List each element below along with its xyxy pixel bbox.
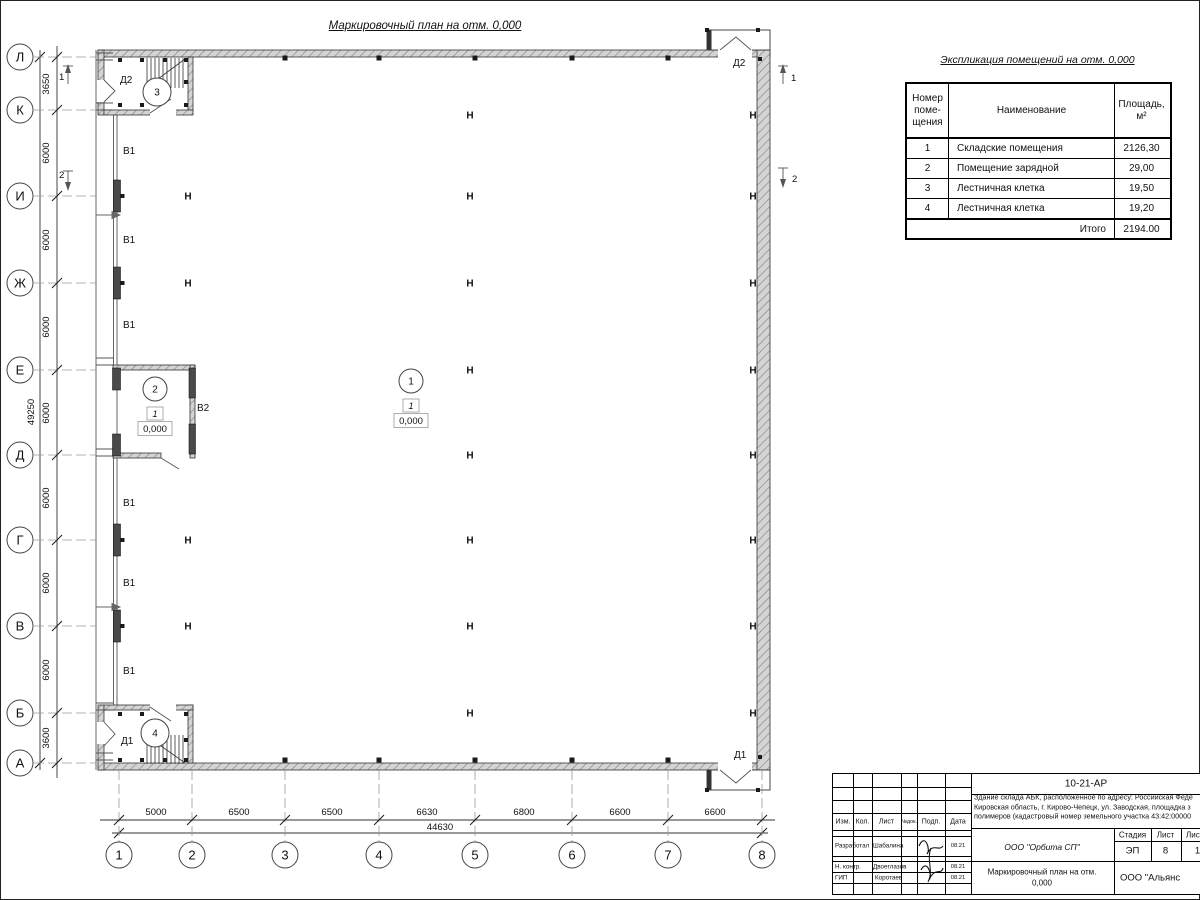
title-block: 10-21-АР Здание склада АБК, расположенно… (832, 773, 1200, 895)
door-swing-icon (104, 80, 115, 102)
column-mark: Н (466, 451, 473, 462)
column-mark: Н (749, 279, 756, 290)
title-block-line (1151, 828, 1152, 861)
door-leaf (161, 458, 179, 469)
south-wall (98, 763, 770, 770)
gate-label: В1 (123, 666, 136, 677)
title-block-line (1181, 828, 1182, 861)
room-number-cell: 2 (907, 159, 949, 178)
sheets-label: Листов (1186, 830, 1200, 839)
column-mark: Н (184, 536, 191, 547)
column-mark: Н (466, 111, 473, 122)
dimension-label: 6600 (704, 807, 725, 818)
axis-label: И (15, 189, 24, 204)
axis-label: Д (16, 448, 25, 463)
gate-label: В1 (123, 578, 136, 589)
room-schedule-title: Экспликация помещений на отм. 0,000 (905, 54, 1170, 66)
room-name-cell: Помещение зарядной (949, 159, 1115, 178)
door-label: Д1 (734, 750, 747, 761)
stage-label: Стадия (1119, 830, 1146, 839)
title-block-line (971, 828, 1200, 829)
drawing-name-line1: Маркировочный план на отм. (988, 867, 1097, 876)
dimension-label: 6000 (41, 316, 52, 337)
column-mark: Н (466, 709, 473, 720)
axis-label: 8 (758, 848, 765, 863)
drawing-name-line2: 0,000 (1032, 878, 1052, 887)
dimension-label: 6000 (41, 142, 52, 163)
column-mark: Н (749, 192, 756, 203)
room-number: 4 (152, 729, 158, 740)
axis-label: Г (16, 533, 23, 548)
column-mark: Н (749, 451, 756, 462)
column-mark: Н (184, 622, 191, 633)
axis-label: К (16, 103, 24, 118)
column-mark: Н (466, 279, 473, 290)
sheet-label: Лист (1157, 830, 1174, 839)
room-name-cell: Лестничная клетка (949, 179, 1115, 198)
dimension-total: 49250 (26, 399, 37, 425)
axis-label: 6 (568, 848, 575, 863)
door-label: Д2 (120, 75, 133, 86)
axis-label: 1 (115, 848, 122, 863)
col-izm: Изм. (836, 818, 851, 825)
room-number: 2 (152, 385, 158, 396)
room-area-cell: 29,00 (1115, 159, 1168, 178)
name-gip: Коротаев (875, 874, 902, 881)
room-schedule-body: 1Складские помещения2126,302Помещение за… (907, 139, 1170, 219)
dimension-label: 3600 (41, 727, 52, 748)
title-block-line (853, 774, 854, 894)
axis-label: 5 (471, 848, 478, 863)
east-wall (757, 50, 770, 770)
axis-label: А (16, 756, 25, 771)
name-ncontrol: Двоеглазов (873, 863, 906, 870)
dimension-label: 6630 (416, 807, 437, 818)
name-developer: Шабалина (873, 843, 903, 850)
date-developer: 08.21 (951, 843, 966, 849)
axis-label: Ж (14, 276, 26, 291)
signature-icon (917, 830, 945, 884)
column-mark: Н (749, 709, 756, 720)
title-block-line (1114, 828, 1115, 894)
project-desc-line: Кировская область, г. Кирово-Чепецк, ул.… (974, 802, 1191, 811)
section-mark-label: 1 (791, 73, 796, 84)
level-value: 0,000 (143, 424, 167, 435)
project-desc-line: Здание склада АБК, расположенное по адре… (974, 793, 1193, 802)
col-ndok: №док. (901, 819, 917, 825)
column-mark: Н (749, 536, 756, 547)
column-mark: Н (749, 622, 756, 633)
column-mark: Н (749, 111, 756, 122)
dimension-label: 6500 (321, 807, 342, 818)
section-mark-label: 2 (792, 174, 797, 185)
dimension-label: 5000 (145, 807, 166, 818)
total-label: Итого (907, 220, 1115, 238)
door-label: Д2 (733, 58, 746, 69)
col-data: Дата (950, 818, 966, 825)
door-swing-icon (104, 722, 115, 746)
column-mark: Н (466, 366, 473, 377)
room-number-cell: 1 (907, 139, 949, 158)
column-mark: Н (184, 279, 191, 290)
axis-label: 4 (375, 848, 382, 863)
level-value: 0,000 (399, 416, 423, 427)
column-mark: Н (466, 192, 473, 203)
room-schedule-table: Номер поме- щения Наименование Площадь, … (905, 82, 1172, 240)
col-header-name: Наименование (949, 84, 1115, 137)
dimension-label: 3650 (41, 73, 52, 94)
west-pilasters (96, 53, 113, 760)
title-block-line (1114, 841, 1200, 842)
wall-posts (283, 56, 671, 763)
dimension-label: 6000 (41, 572, 52, 593)
west-gates (114, 180, 125, 642)
room-area-cell: 19,20 (1115, 199, 1168, 218)
dimension-label: 6600 (609, 807, 630, 818)
column-mark: Н (466, 536, 473, 547)
col-kol: Кол. (856, 818, 870, 825)
date-gip: 08.21 (951, 875, 966, 881)
table-row: 3Лестничная клетка19,50 (907, 179, 1170, 199)
dimension-label: 6000 (41, 487, 52, 508)
zone-number: 1 (408, 401, 413, 411)
gate-label: В2 (197, 403, 210, 414)
axis-label: 7 (664, 848, 671, 863)
date-ncontrol: 08.21 (951, 864, 966, 870)
room-number: 1 (408, 377, 414, 388)
dimension-total: 44630 (427, 822, 453, 833)
col-header-area: Площадь, м² (1115, 84, 1168, 137)
project-desc-line: полимеров (кадастровый номер земельного … (974, 812, 1191, 821)
axis-label: Е (16, 363, 25, 378)
section-mark-arrow-icon (65, 64, 71, 73)
total-value: 2194.00 (1115, 220, 1168, 238)
room-number-cell: 4 (907, 199, 949, 218)
axis-label: Б (16, 706, 25, 721)
door-label: Д1 (121, 736, 134, 747)
dimension-label: 6800 (513, 807, 534, 818)
room-number-cell: 3 (907, 179, 949, 198)
room-schedule-total-row: Итого 2194.00 (907, 219, 1170, 238)
table-row: 4Лестничная клетка19,20 (907, 199, 1170, 219)
stage-value: ЭП (1126, 846, 1140, 857)
column-mark: Н (466, 622, 473, 633)
title-block-line (872, 774, 873, 894)
dimension-label: 6000 (41, 229, 52, 250)
dimension-label: 6000 (41, 659, 52, 680)
org-name: ООО "Орбита СП" (1004, 842, 1079, 852)
title-block-line (945, 774, 946, 894)
col-header-number: Номер поме- щения (907, 84, 949, 137)
gate-label: В1 (123, 498, 136, 509)
dimension-label: 6500 (228, 807, 249, 818)
company-name: ООО "Альянс (1120, 872, 1180, 883)
axis-label: Л (16, 50, 25, 65)
table-row: 2Помещение зарядной29,00 (907, 159, 1170, 179)
title-block-line (971, 774, 972, 894)
section-mark-arrow-icon (780, 179, 786, 188)
col-list: Лист (879, 818, 894, 825)
section-mark-arrow-icon (65, 182, 71, 191)
room-area-cell: 2126,30 (1115, 139, 1168, 158)
role-gip: ГИП (835, 874, 847, 881)
table-row: 1Складские помещения2126,30 (907, 139, 1170, 159)
room-name-cell: Лестничная клетка (949, 199, 1115, 218)
section-mark-label: 2 (59, 170, 64, 181)
room-name-cell: Складские помещения (949, 139, 1115, 158)
room-number: 3 (154, 88, 160, 99)
section-mark-label: 1 (59, 72, 64, 83)
role-ncontrol: Н. контр. (835, 863, 861, 870)
dimension-lines (35, 46, 775, 838)
sheets-total: 1 (1195, 846, 1200, 857)
dimension-label: 6000 (41, 402, 52, 423)
room-area-cell: 19,50 (1115, 179, 1168, 198)
axis-label: 3 (281, 848, 288, 863)
column-mark: Н (184, 192, 191, 203)
column-mark: Н (749, 366, 756, 377)
axis-label: 2 (188, 848, 195, 863)
role-developer: Разработал (835, 843, 869, 850)
gate-label: В1 (123, 235, 136, 246)
section-mark-arrow-icon (780, 64, 786, 73)
room-schedule-header: Номер поме- щения Наименование Площадь, … (907, 84, 1170, 139)
axis-label: В (16, 619, 25, 634)
doc-number: 10-21-АР (1065, 779, 1107, 790)
col-podp: Подп. (922, 818, 941, 825)
sheet-number: 8 (1163, 846, 1168, 857)
gate-label: В1 (123, 146, 136, 157)
title-block-line (971, 861, 1200, 862)
zone-number: 1 (152, 409, 157, 419)
gate-label: В1 (123, 320, 136, 331)
